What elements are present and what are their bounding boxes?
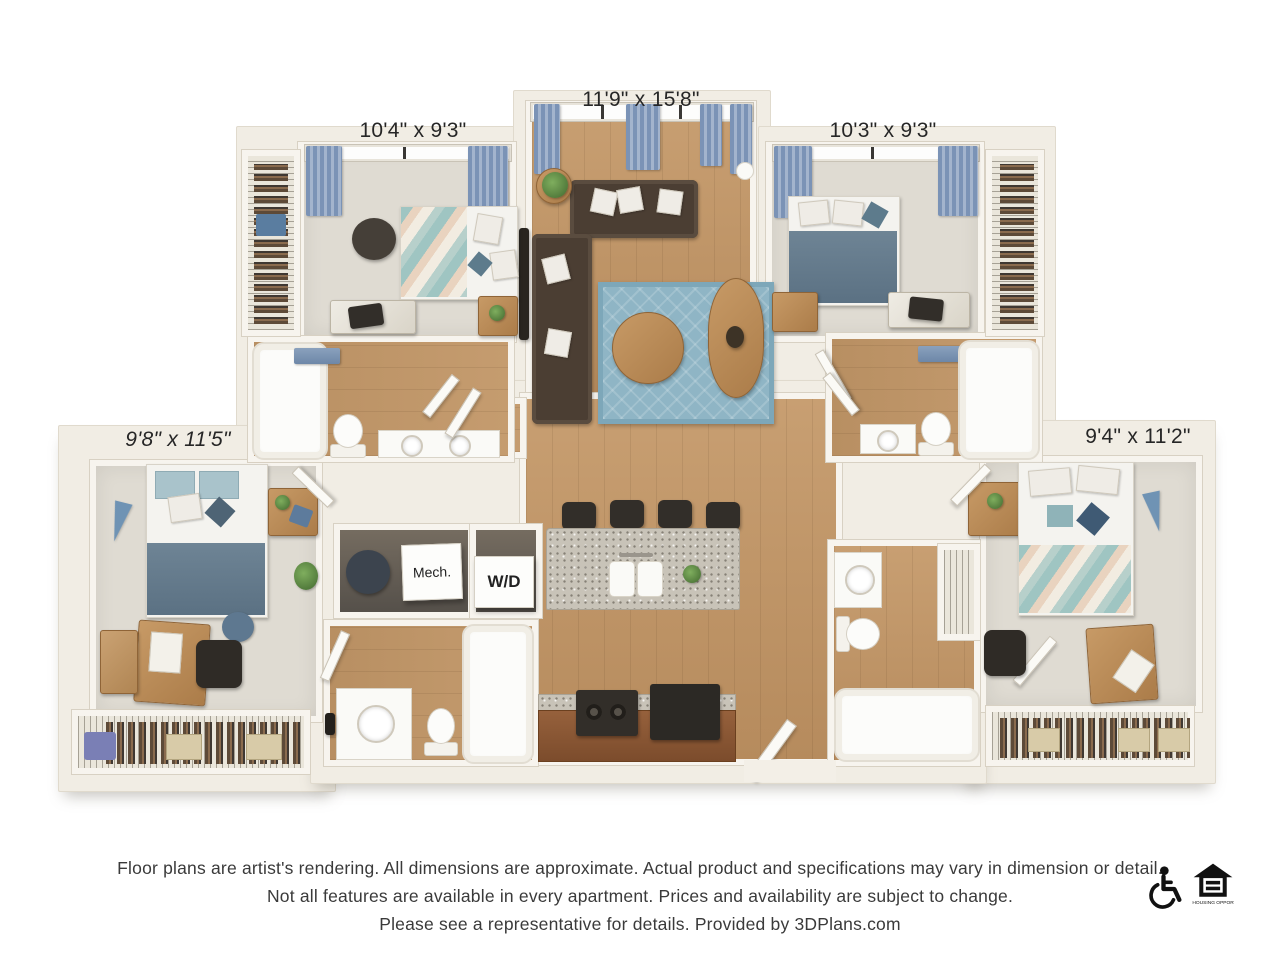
bathroom-vanity: [378, 430, 500, 458]
toilet-tank: [424, 742, 458, 756]
sink-basin: [637, 561, 663, 597]
washer-dryer-label: W/D: [487, 572, 520, 592]
washer-dryer-label-box: W/D: [474, 556, 534, 608]
bed-pillow: [199, 471, 239, 499]
bed: [146, 464, 268, 618]
burner: [610, 704, 626, 720]
laptop: [908, 296, 944, 321]
storage-bin: [84, 732, 116, 760]
bathtub: [958, 340, 1040, 460]
bar-stool: [610, 500, 644, 528]
bathroom-vanity: [860, 424, 916, 454]
sink-basin: [845, 565, 875, 595]
bathtub: [834, 688, 980, 762]
bar-stool: [658, 500, 692, 528]
bed-pillow: [473, 213, 503, 245]
dimension-label-bedroom-top-right: 10'3" x 9'3": [788, 119, 978, 143]
curtain: [306, 146, 342, 216]
side-table: [1085, 624, 1158, 705]
sink-basin: [357, 705, 395, 743]
closet-top-left: [242, 150, 300, 336]
bed: [788, 196, 900, 306]
closet-right-bedroom: [986, 706, 1194, 766]
floor-plan-rendering: Mech. W/D: [0, 0, 1280, 960]
bar-stool: [706, 502, 740, 530]
potted-plant: [275, 495, 290, 510]
desk-chair: [196, 640, 242, 688]
curtain: [534, 104, 560, 174]
mechanical-closet-label: Mech.: [413, 563, 452, 580]
disclaimer-line-3: Please see a representative for details.…: [0, 914, 1280, 935]
potted-plant: [294, 562, 318, 590]
desk: [968, 482, 1024, 536]
faucet: [619, 553, 653, 557]
burner: [586, 704, 602, 720]
wheelchair-accessible-icon: [1146, 864, 1186, 914]
storage-box: [1158, 728, 1190, 752]
linen-shelf: [938, 544, 980, 640]
closet-top-right: [986, 150, 1044, 336]
storage-bin: [256, 214, 286, 236]
mechanical-closet-label-box: Mech.: [401, 543, 463, 601]
potted-plant: [683, 565, 701, 583]
disclaimer-line-2: Not all features are available in every …: [0, 886, 1280, 907]
blanket: [147, 543, 265, 615]
curtain: [700, 104, 722, 166]
bed-pillow: [832, 199, 864, 226]
coffee-table: [612, 312, 684, 384]
potted-plant: [489, 305, 505, 321]
bed: [1018, 462, 1134, 616]
equal-housing-opportunity-icon: EQUAL HOUSING OPPORTUNITY: [1192, 860, 1234, 914]
bed: [400, 206, 518, 300]
chevron-duvet: [1019, 545, 1131, 613]
equal-housing-text: EQUAL HOUSING OPPORTUNITY: [1192, 900, 1234, 906]
sink-basin: [401, 435, 423, 457]
accent-pillow: [1047, 505, 1073, 527]
nightstand: [772, 292, 818, 332]
nightstand: [478, 296, 518, 336]
window-mullion: [871, 147, 874, 159]
desk: [888, 292, 970, 328]
bathroom-vanity: [834, 552, 882, 608]
dimension-label-bedroom-right: 9'4" x 11'2": [1038, 425, 1238, 449]
chevron-duvet: [401, 207, 467, 297]
pouf-ottoman: [352, 218, 396, 260]
dimension-label-bedroom-top-left: 10'4" x 9'3": [318, 119, 508, 143]
laptop: [348, 303, 385, 330]
desk-chair: [984, 630, 1026, 676]
papers: [1112, 649, 1154, 693]
side-table: [100, 630, 138, 694]
toilet: [921, 412, 951, 446]
water-heater: [346, 550, 390, 594]
accent-pillow: [861, 201, 888, 228]
bed-pillow: [489, 249, 519, 280]
potted-plant: [542, 172, 568, 198]
stove: [576, 690, 638, 736]
entry-threshold: [744, 760, 836, 782]
bed-pillow: [1028, 467, 1072, 497]
bathtub: [462, 624, 534, 764]
throw-pillow: [616, 186, 644, 214]
floor-lamp: [736, 162, 754, 180]
desk: [330, 300, 416, 334]
refrigerator: [650, 684, 720, 740]
toilet: [427, 708, 455, 744]
dimension-label-living-room: 11'9" x 15'8": [541, 88, 741, 112]
towel: [294, 348, 340, 364]
throw-pillow: [544, 328, 572, 358]
bed-pillow: [1076, 465, 1120, 495]
tv-console: [519, 228, 529, 340]
accent-pillow: [1076, 502, 1110, 536]
storage-box: [166, 734, 202, 760]
nightstand: [268, 488, 318, 536]
bed-pillow: [798, 199, 830, 226]
toiletries: [325, 713, 335, 735]
bed-pillow: [167, 493, 202, 523]
curtain: [626, 104, 660, 170]
kitchen-island: [546, 528, 740, 610]
table-base: [726, 326, 744, 348]
potted-plant: [987, 493, 1003, 509]
toilet: [333, 414, 363, 448]
accent-pillow: [204, 496, 235, 527]
pouf-ottoman: [222, 612, 254, 642]
storage-box: [246, 734, 282, 760]
sink-basin: [877, 430, 899, 452]
hanging-clothes: [254, 164, 288, 324]
curtain: [938, 146, 978, 216]
hanging-clothes: [1000, 164, 1034, 324]
papers: [148, 631, 183, 673]
window-mullion: [403, 147, 406, 159]
storage-box: [1118, 728, 1150, 752]
dimension-label-bedroom-left: 9'8" x 11'5": [78, 428, 278, 452]
closet-left-bedroom: [72, 710, 310, 774]
bar-stool: [562, 502, 596, 530]
sink-basin: [609, 561, 635, 597]
storage-box: [1028, 728, 1060, 752]
laptop: [289, 504, 314, 528]
disclaimer-line-1: Floor plans are artist's rendering. All …: [0, 858, 1280, 879]
bathroom-vanity: [336, 688, 412, 760]
throw-pillow: [656, 188, 683, 215]
toilet: [846, 618, 880, 650]
throw-pillow: [590, 188, 618, 216]
